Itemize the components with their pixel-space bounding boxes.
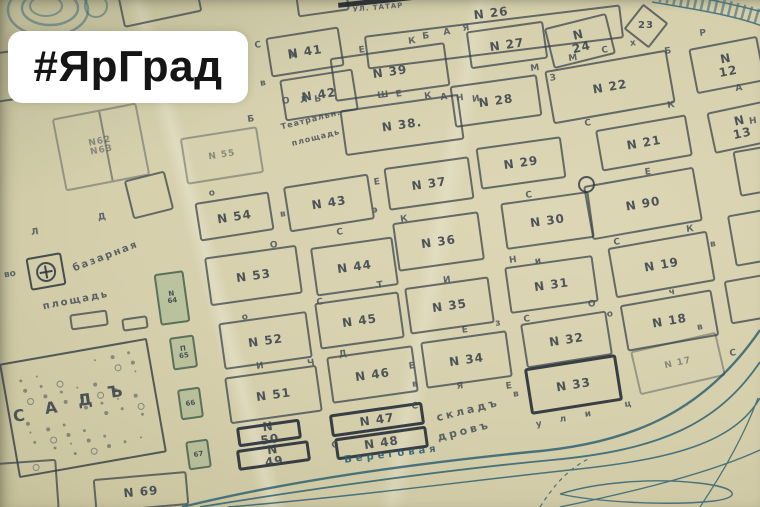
place-label: УЛ. ТАТАР xyxy=(352,2,403,13)
historic-map-photo: N 26N 41N 42N 39N 38.N 27N 2423N 22N 12N… xyxy=(0,0,760,507)
place-label: дровъ xyxy=(436,419,492,443)
place-label: складъ xyxy=(435,397,500,423)
place-label: площадь xyxy=(291,128,341,148)
place-label: базарная xyxy=(72,240,140,274)
place-label: Береговая xyxy=(344,444,440,466)
place-label: площадь xyxy=(42,290,110,313)
hashtag-badge: #ЯрГрад xyxy=(8,31,248,103)
hashtag-text: #ЯрГрад xyxy=(33,42,222,92)
